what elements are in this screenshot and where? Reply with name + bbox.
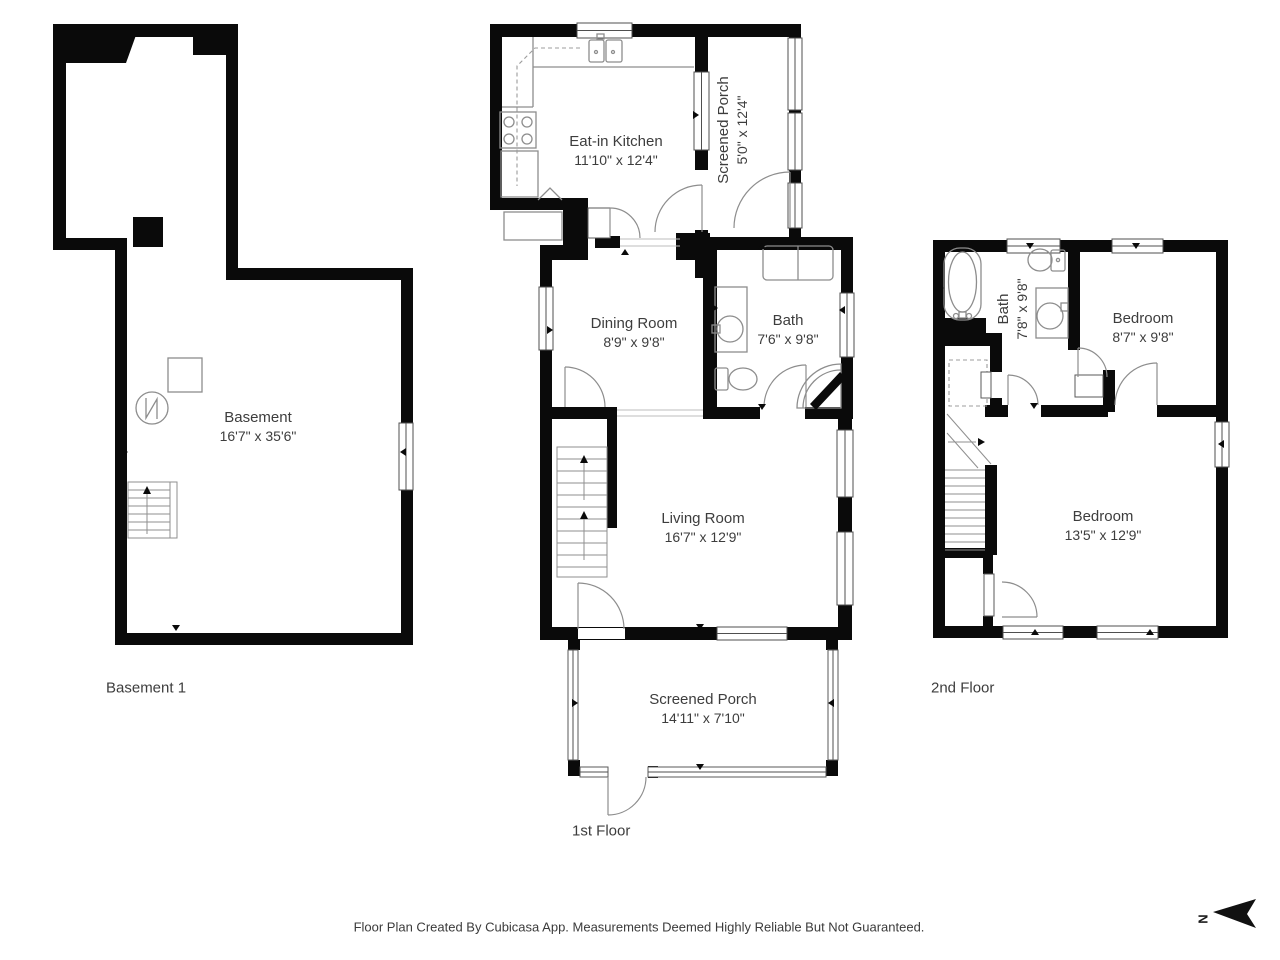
furnace-icon <box>168 358 202 392</box>
second-floor-doors <box>984 348 1157 617</box>
large-bedroom-label: Bedroom 13'5" x 12'9" <box>1065 507 1142 545</box>
room-dims: 7'6" x 9'8" <box>757 330 818 349</box>
kitchen-label: Eat-in Kitchen 11'10" x 12'4" <box>569 132 662 170</box>
water-heater-icon <box>136 392 168 424</box>
room-dims: 8'9" x 9'8" <box>591 333 678 352</box>
room-name: Living Room <box>661 509 744 528</box>
bedroom-closet-front <box>1075 375 1103 397</box>
room-dims: 14'11" x 7'10" <box>649 709 757 728</box>
room-name: Dining Room <box>591 314 678 333</box>
bathroom-sink-icon <box>1036 288 1068 338</box>
small-bedroom-label: Bedroom 8'7" x 9'8" <box>1112 309 1173 347</box>
room-dims: 8'7" x 9'8" <box>1112 328 1173 347</box>
closet-door-leaf <box>981 372 991 398</box>
bathtub-icon <box>763 246 833 280</box>
room-name: Screened Porch <box>649 690 757 709</box>
room-dims: 16'7" x 35'6" <box>220 427 297 446</box>
second-floor-plan <box>933 239 1229 639</box>
basement-room-label: Basement 16'7" x 35'6" <box>220 408 297 446</box>
basement-window <box>399 423 413 490</box>
counter <box>501 151 538 197</box>
second-stairs-icon <box>945 414 991 550</box>
side-entry-door <box>588 208 640 238</box>
disclaimer-text: Floor Plan Created By Cubicasa App. Meas… <box>354 920 925 935</box>
porch-top-label: Screened Porch 5'0" x 12'4" <box>714 76 752 184</box>
front-door <box>578 583 624 629</box>
bathroom-sink-icon <box>712 287 747 352</box>
room-name: Eat-in Kitchen <box>569 132 662 151</box>
bath-door <box>764 365 806 407</box>
living-label: Living Room 16'7" x 12'9" <box>661 509 744 547</box>
first-floor-label: 1st Floor <box>572 823 630 840</box>
basement-floor-label: Basement 1 <box>106 680 186 697</box>
room-name: Bedroom <box>1112 309 1173 328</box>
large-bedroom-closet-door <box>984 574 1037 617</box>
porch-exit-door <box>608 777 646 815</box>
basement-stair-door <box>565 367 605 407</box>
floor-plan-page: Basement 16'7" x 35'6" Eat-in Kitchen 11… <box>0 0 1280 960</box>
second-floor-label: 2nd Floor <box>931 680 994 697</box>
small-bedroom-closet-door <box>1078 348 1107 377</box>
second-floor-windows <box>1003 239 1229 639</box>
room-name: Bedroom <box>1065 507 1142 526</box>
toilet-icon <box>715 368 757 390</box>
basement-walls <box>53 24 413 645</box>
basement-ticks <box>122 27 406 631</box>
room-dims: 5'0" x 12'4" <box>733 76 752 184</box>
room-name: Basement <box>220 408 297 427</box>
living-stairs-icon <box>557 447 607 577</box>
stove-icon <box>500 112 536 148</box>
small-bedroom-door <box>1115 363 1157 405</box>
porch-bottom-label: Screened Porch 14'11" x 7'10" <box>649 690 757 728</box>
north-label: N <box>1196 914 1211 923</box>
basement-stairs-icon <box>128 482 177 538</box>
basement-plan <box>53 24 413 645</box>
dining-label: Dining Room 8'9" x 9'8" <box>591 314 678 352</box>
room-dims: 16'7" x 12'9" <box>661 528 744 547</box>
room-name: Bath <box>994 278 1013 339</box>
second-floor-walls <box>933 240 1228 638</box>
corner-shower-icon <box>797 364 846 410</box>
clawfoot-tub-icon <box>944 248 981 320</box>
bath-door <box>1008 375 1038 405</box>
room-dims: 7'8" x 9'8" <box>1013 278 1032 339</box>
entry-stoop <box>504 212 562 240</box>
room-dims: 13'5" x 12'9" <box>1065 526 1142 545</box>
room-name: Bath <box>757 311 818 330</box>
room-dims: 11'10" x 12'4" <box>569 151 662 170</box>
north-arrow-icon <box>1213 899 1256 928</box>
first-bath-label: Bath 7'6" x 9'8" <box>757 311 818 349</box>
second-bath-label: Bath 7'8" x 9'8" <box>994 278 1032 339</box>
room-name: Screened Porch <box>714 76 733 184</box>
